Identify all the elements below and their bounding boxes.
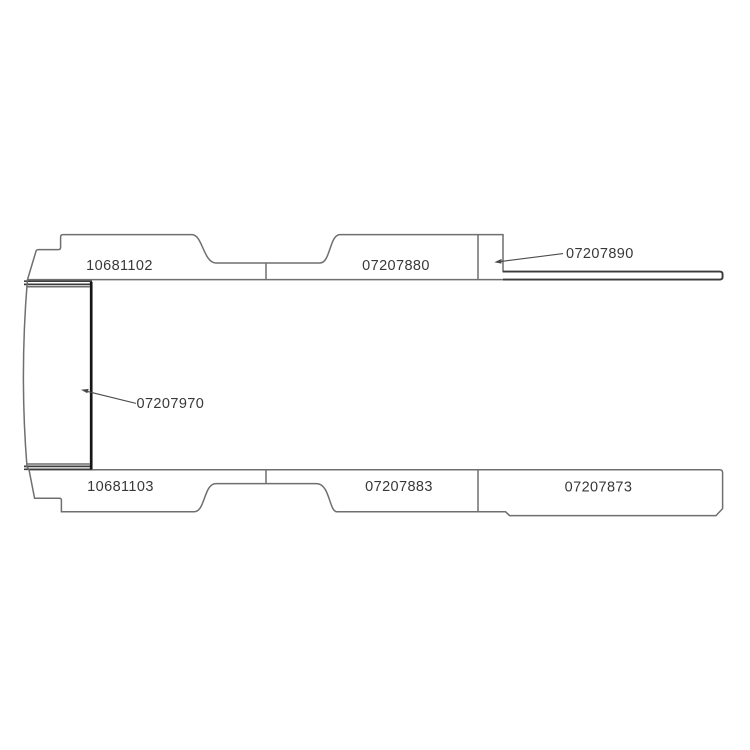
front-panel-left-arc: [23, 280, 29, 470]
bottom-rub-strip: [24, 466, 92, 469]
top-rub-strip: [24, 281, 92, 284]
part-label-sill-strip: 07207890: [566, 246, 634, 262]
part-label-bottom-right: 07207873: [565, 480, 633, 496]
drawing-canvas: 10681102 07207880 07207890 07207970 1068…: [0, 0, 750, 750]
floor-plan-drawing: 10681102 07207880 07207890 07207970 1068…: [0, 0, 750, 750]
part-label-bottom-left: 10681103: [87, 479, 154, 495]
leader-arrow-07207970: [81, 389, 89, 393]
part-label-bottom-middle: 07207883: [365, 479, 433, 495]
part-label-front-panel: 07207970: [137, 396, 205, 412]
leader-line-07207890: [498, 254, 564, 262]
leader-arrow-07207890: [494, 259, 501, 264]
part-label-top-middle: 07207880: [362, 258, 430, 274]
sill-strip-07207890: [503, 272, 723, 280]
part-label-top-left: 10681102: [86, 258, 153, 274]
